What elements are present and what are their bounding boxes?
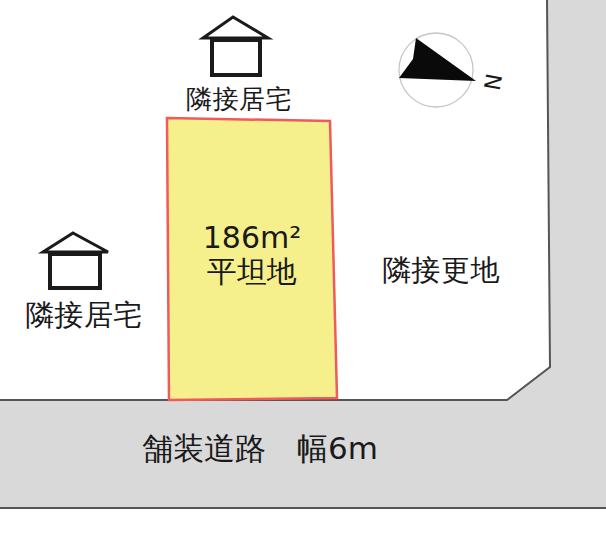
compass-north-label: N — [479, 68, 507, 96]
north-arrow-icon — [399, 38, 476, 81]
house-roof — [203, 17, 268, 38]
parcel-label: 186m² 平坦地 — [167, 221, 337, 289]
neighbor-house-label-left: 隣接居宅 — [25, 296, 143, 336]
parcel-area-label: 186m² — [167, 221, 337, 255]
road-label: 舗装道路 幅6m — [142, 428, 378, 470]
neighbor-house-label-top: 隣接居宅 — [186, 82, 292, 117]
parcel-terrain-label: 平坦地 — [167, 255, 337, 289]
house-roof — [43, 233, 108, 252]
compass — [399, 33, 476, 107]
house-icon-left — [43, 233, 108, 288]
house-body — [212, 40, 260, 75]
house-body — [50, 254, 100, 288]
plot-diagram: N 隣接居宅 隣接居宅 隣接更地 186m² 平坦地 舗装道路 幅6m — [0, 0, 606, 534]
house-icon-top — [203, 17, 268, 75]
vacant-land-label: 隣接更地 — [382, 251, 500, 291]
